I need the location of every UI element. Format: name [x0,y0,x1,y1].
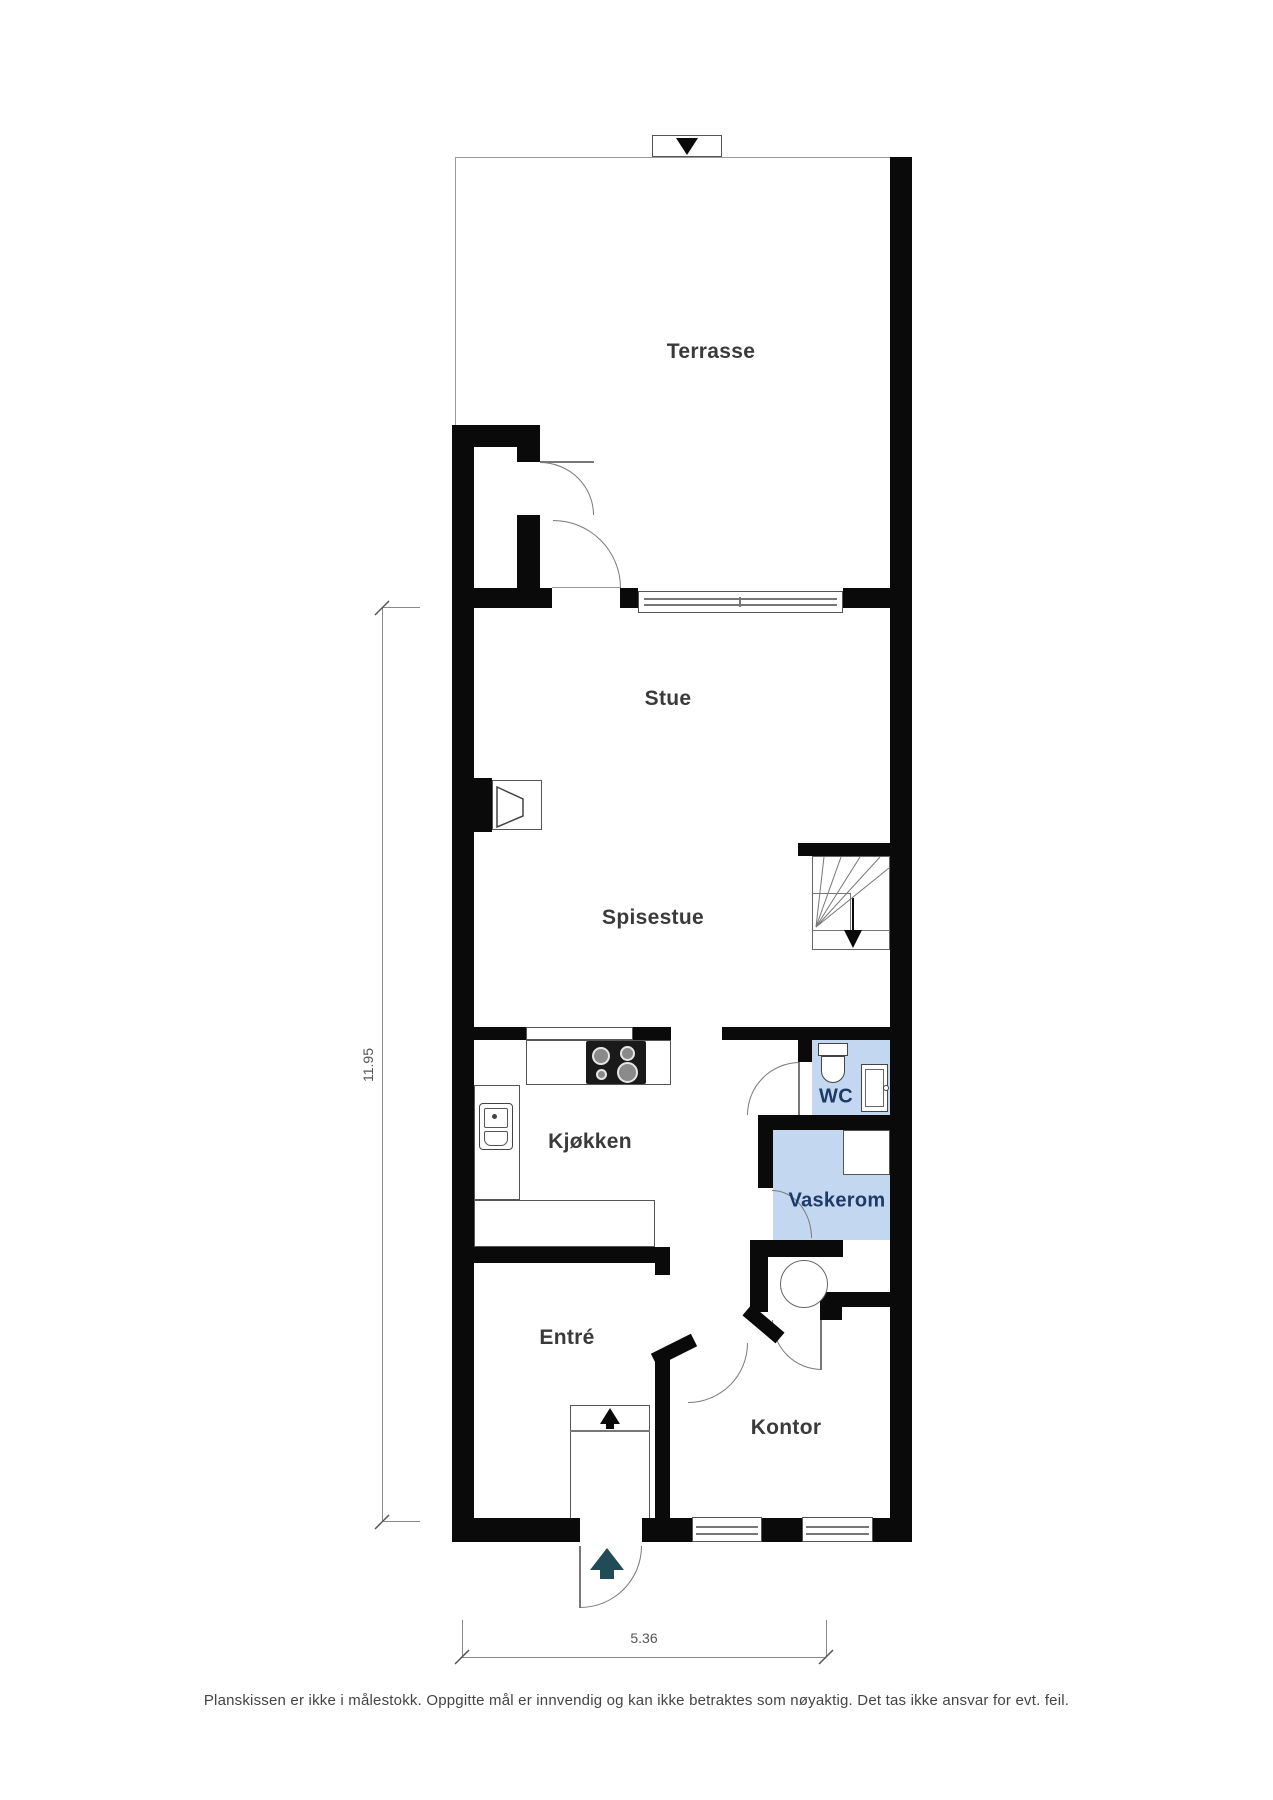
floor-plan: 11.95 5.36 Terrasse Stue Spisestue Kjøkk… [0,0,1273,1800]
dimension-ext-left [462,1620,463,1657]
entry-direction-arrow-stem [606,1424,614,1429]
wall-kitchen-entre [452,1247,670,1263]
vestibule-line [570,1430,650,1432]
room-label-terrasse: Terrasse [667,340,755,364]
wall-wc-top [722,1027,890,1040]
stove-burner-icon [596,1069,607,1080]
wall-wc-vask-divider [758,1115,890,1130]
wall-stue-top-left [452,588,552,608]
door-arc-wc [747,1062,800,1115]
entry-direction-arrow-icon [600,1408,620,1424]
wall-stue-top-right [843,588,890,608]
wall-below-vask [757,1240,843,1257]
window-kontor-2-glass [806,1533,869,1535]
wall-alcove-top [452,425,540,447]
wall-stair-stub [798,843,890,856]
kitchen-sink-basin-bottom [484,1131,508,1146]
stairs-arrow-stem [852,898,854,930]
water-heater-icon [780,1260,828,1308]
dimension-ext-top [382,607,420,608]
window-kontor-1-glass [696,1526,758,1528]
door-leaf-alcove [540,461,594,463]
kitchen-pass-band [526,1027,633,1040]
disclaimer-text: Planskissen er ikke i målestokk. Oppgitt… [0,1692,1273,1709]
wall-right [890,157,912,1542]
room-label-vaskerom: Vaskerom [789,1190,886,1213]
main-entrance-arrow-icon [590,1548,624,1570]
main-entrance-arrow-stem [600,1570,614,1579]
wall-kitchen-entre-stub [655,1263,670,1275]
wall-kitchen-b [633,1027,671,1040]
wall-alcove-stub-b [517,515,540,588]
north-marker-triangle-down-icon [676,138,698,155]
stove-burner-icon [617,1062,638,1083]
dimension-line-vertical [382,608,383,1522]
wall-stue-top-stub [620,588,638,608]
kitchen-sink-faucet-icon [492,1114,497,1119]
wall-kitchen-a [452,1027,526,1040]
door-threshold-terrasse [552,587,620,588]
terrasse-top-edge [455,157,891,158]
stove-burner-icon [592,1047,610,1065]
dimension-label-height: 11.95 [360,1048,376,1082]
wall-nook-stub [820,1307,842,1320]
toilet-bowl-icon [821,1056,845,1083]
washbasin-inner [865,1069,884,1107]
door-arc-alcove [540,462,594,515]
entrance-opening [580,1518,642,1542]
toilet-icon [818,1043,848,1056]
wall-nook-left [750,1240,768,1312]
wall-hall-vertical [655,1355,670,1522]
door-leaf-entrance [579,1546,581,1608]
dimension-ext-bottom [382,1521,420,1522]
vaskerom-appliance [843,1130,890,1175]
terrasse-left-edge [455,157,456,426]
window-kontor-2-glass [806,1526,869,1528]
room-label-entre: Entré [539,1326,594,1350]
window-kontor-2 [802,1517,873,1542]
door-leaf-kontor [820,1320,822,1370]
stove-burner-icon [620,1046,635,1061]
stairs-tread [850,893,851,930]
wall-alcove-stub-a [517,447,540,462]
door-arc-kontor [772,1320,822,1370]
room-label-kjokken: Kjøkken [548,1130,632,1154]
room-label-spisestue: Spisestue [602,906,704,930]
dimension-ext-right [826,1620,827,1657]
stairs-tread [812,893,850,894]
kitchen-counter-bottom [474,1200,655,1247]
fireplace-block [452,778,492,832]
dimension-line-horizontal [462,1657,826,1658]
wall-vask-left [758,1130,773,1188]
wall-nook-bottom [820,1292,912,1307]
wall-wc-left-stub [798,1040,812,1062]
door-arc-hall [688,1343,748,1403]
room-label-stue: Stue [645,687,692,711]
room-label-wc: WC [819,1086,853,1109]
stairs-arrow-down-icon [844,930,862,948]
washbasin-faucet-icon [883,1085,889,1091]
door-arc-terrasse [553,520,621,588]
window-kontor-1 [692,1517,762,1542]
window-kontor-1-glass [696,1533,758,1535]
door-leaf-wc [798,1062,800,1115]
dimension-label-width: 5.36 [630,1630,657,1646]
room-label-kontor: Kontor [751,1416,822,1440]
fireplace-icon [492,780,542,830]
window-stue-mullion [739,597,741,607]
